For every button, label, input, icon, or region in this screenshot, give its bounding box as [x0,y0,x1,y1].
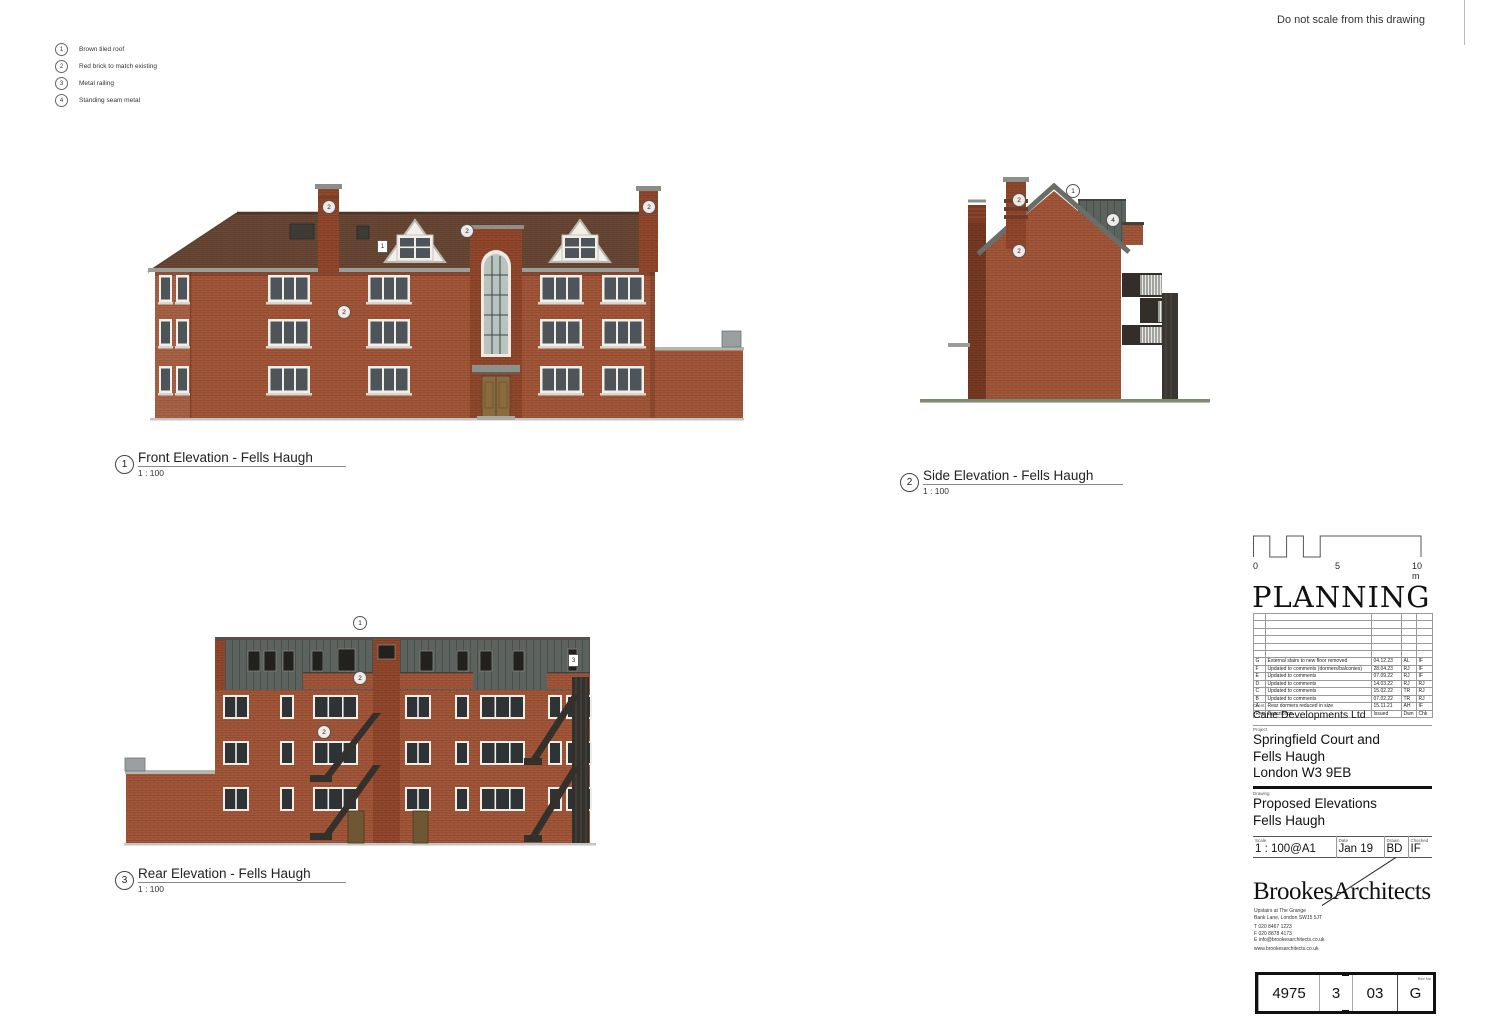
revision-description [1266,628,1372,635]
revision-row: D Updated to comments 14.03.22 RJ RJ [1254,680,1433,688]
scale-bar-five: 5 [1335,561,1340,571]
legend-text: Standing seam metal [79,97,140,104]
project-section: Project Springfield Court and Fells Haug… [1253,727,1432,782]
revision-issued [1372,643,1402,650]
revision-dwn: RJ [1402,673,1417,681]
scale-bar [1253,532,1425,560]
project-line: Springfield Court and [1253,732,1432,749]
revision-rev [1254,643,1266,650]
revision-dwn [1402,628,1417,635]
revision-chk: RJ [1417,680,1433,688]
sheet-edge-mark [1464,0,1465,45]
revision-row [1254,636,1433,643]
revision-description: Updated to comments [1266,680,1372,688]
architect-address: Upstairs at The Grange Bank Lane, London… [1254,908,1322,921]
revision-rev: B [1254,695,1266,703]
elevation-number-badge: 1 [115,455,134,474]
revision-row: F Updated to comments (dormers/balconies… [1254,665,1433,673]
scale-bar-zero: 0 [1253,561,1258,571]
revision-chk [1417,643,1433,650]
material-callout: 1 [1066,184,1080,198]
revision-rev: G [1254,658,1266,666]
legend-number-badge: 3 [55,77,68,90]
revision-row: C Updated to comments 15.02.22 TR RJ [1254,688,1433,696]
revision-issued: 07.02.22 [1372,695,1402,703]
revision-row: G External stairs to new floor removed 0… [1254,658,1433,666]
do-not-scale-note: Do not scale from this drawing [1277,14,1425,26]
revision-issued [1372,628,1402,635]
project-number: 4975 [1258,975,1319,1011]
contact-line: E info@brookesarchitects.co.uk [1254,937,1324,944]
revision-dwn [1402,650,1417,657]
revision-row: E Updated to comments 07.09.22 RJ IF [1254,673,1433,681]
revision-row [1254,614,1433,621]
revision-chk [1417,628,1433,635]
client-section: Client Cane Developments Ltd [1253,703,1432,721]
revision-description [1266,621,1372,628]
divider [1253,725,1432,726]
rev-no-label: Rev No [1418,976,1431,981]
scale-bar-ten: 10 m [1412,561,1425,581]
material-callout: 4 [1106,213,1120,227]
rear-elevation-drawing [120,615,600,850]
revision-rev [1254,614,1266,621]
architect-website: www.brookesarchitects.co.uk [1254,946,1318,952]
revision-issued [1372,636,1402,643]
rev-no-value: G [1410,985,1422,1002]
material-callout: 2 [460,224,474,238]
material-callout: 2 [1012,193,1026,207]
revision-letter: Rev No G [1397,975,1433,1011]
drawing-line: Proposed Elevations [1253,796,1432,813]
client-label: Client [1253,703,1432,708]
revision-issued: 07.09.22 [1372,673,1402,681]
revision-description [1266,636,1372,643]
front-elevation-caption: 1 Front Elevation - Fells Haugh 1 : 100 [115,450,346,478]
revision-rev: F [1254,665,1266,673]
revision-dwn: RJ [1402,665,1417,673]
materials-legend: 1 Brown tiled roof 2 Red brick to match … [55,41,157,109]
revision-issued: 15.02.22 [1372,688,1402,696]
revision-dwn: TR [1402,688,1417,696]
drawing-info-table: Scale Date Drawn Checked 1 : 100@A1 Jan … [1253,836,1432,858]
project-line: Fells Haugh [1253,749,1432,766]
material-callout: 2 [322,200,336,214]
elevation-scale: 1 : 100 [923,486,1123,496]
elevation-scale: 1 : 100 [138,468,346,478]
originator-number: 3 [1319,975,1352,1011]
legend-item: 1 Brown tiled roof [55,41,157,58]
revision-row [1254,628,1433,635]
drawing-number-block: 4975 3 03 Rev No G [1255,972,1436,1014]
side-elevation-caption: 2 Side Elevation - Fells Haugh 1 : 100 [900,468,1123,496]
architect-contacts: T 020 8467 1223 F 020 8878 4173 E info@b… [1254,924,1324,944]
revision-chk [1417,621,1433,628]
revision-dwn [1402,621,1417,628]
client-name: Cane Developments Ltd [1253,709,1432,721]
revision-dwn [1402,614,1417,621]
material-tag: 3 [568,654,579,667]
material-callout: 1 [353,616,367,630]
revision-description: Updated to comments (dormers/balconies) [1266,665,1372,673]
rear-elevation-caption: 3 Rear Elevation - Fells Haugh 1 : 100 [115,866,346,894]
revision-description: Updated to comments [1266,673,1372,681]
revision-description: Updated to comments [1266,695,1372,703]
revision-issued [1372,650,1402,657]
legend-text: Metal railing [79,80,114,87]
legend-number-badge: 1 [55,43,68,56]
revision-dwn: TR [1402,695,1417,703]
front-elevation-drawing [142,180,745,425]
revision-description: Updated to comments [1266,688,1372,696]
revision-issued: 28.04.23 [1372,665,1402,673]
revision-issued [1372,614,1402,621]
elevation-title: Front Elevation - Fells Haugh [138,450,346,467]
revision-chk: IF [1417,673,1433,681]
elevation-scale: 1 : 100 [138,884,346,894]
revision-chk: RJ [1417,695,1433,703]
revision-dwn: RJ [1402,680,1417,688]
material-tag: 1 [377,240,388,253]
sheet-number: 03 [1352,975,1397,1011]
address-line: Bank Lane, London SW15 5JT [1254,915,1322,922]
drawing-line: Fells Haugh [1253,813,1432,830]
planning-stage-title: PLANNING [1252,580,1434,614]
material-callout: 2 [353,671,367,685]
elevation-title: Rear Elevation - Fells Haugh [138,866,346,883]
legend-number-badge: 2 [55,60,68,73]
scale-value: 1 : 100@A1 [1253,843,1336,858]
revision-description [1266,643,1372,650]
side-elevation-drawing [918,175,1212,407]
drawing-section: Drawing Proposed Elevations Fells Haugh [1253,791,1432,829]
drawn-value: BD [1384,843,1408,858]
revision-dwn [1402,636,1417,643]
elevation-number-badge: 3 [115,871,134,890]
revision-rev: E [1254,673,1266,681]
revision-issued [1372,621,1402,628]
legend-item: 2 Red brick to match existing [55,58,157,75]
legend-item: 3 Metal railing [55,75,157,92]
revision-row [1254,643,1433,650]
legend-number-badge: 4 [55,94,68,107]
material-callout: 2 [1012,244,1026,258]
revision-rev [1254,628,1266,635]
revision-description [1266,614,1372,621]
revision-row [1254,650,1433,657]
revision-issued: 14.03.22 [1372,680,1402,688]
date-value: Jan 19 [1336,843,1384,858]
revision-chk: IF [1417,658,1433,666]
project-line: London W3 9EB [1253,765,1432,782]
revision-rev: C [1254,688,1266,696]
revision-chk [1417,636,1433,643]
material-callout: 2 [642,200,656,214]
revision-issued: 04.12.23 [1372,658,1402,666]
revision-row: B Updated to comments 07.02.22 TR RJ [1254,695,1433,703]
revision-dwn [1402,643,1417,650]
revision-rev [1254,636,1266,643]
divider-thick [1253,786,1432,789]
material-callout: 2 [317,725,331,739]
revision-description: External stairs to new floor removed [1266,658,1372,666]
material-callout: 2 [337,305,351,319]
revision-rev [1254,621,1266,628]
revision-description [1266,650,1372,657]
revision-chk [1417,614,1433,621]
legend-text: Red brick to match existing [79,63,157,70]
drawing-sheet: Do not scale from this drawing 1 Brown t… [0,0,1500,1033]
legend-text: Brown tiled roof [79,46,124,53]
revision-chk: IF [1417,665,1433,673]
checked-value: IF [1408,843,1432,858]
elevation-title: Side Elevation - Fells Haugh [923,468,1123,485]
elevation-number-badge: 2 [900,473,919,492]
revision-chk: RJ [1417,688,1433,696]
revision-rev [1254,650,1266,657]
revision-dwn: AL [1402,658,1417,666]
revision-rev: D [1254,680,1266,688]
revision-row [1254,621,1433,628]
legend-item: 4 Standing seam metal [55,92,157,109]
revision-chk [1417,650,1433,657]
